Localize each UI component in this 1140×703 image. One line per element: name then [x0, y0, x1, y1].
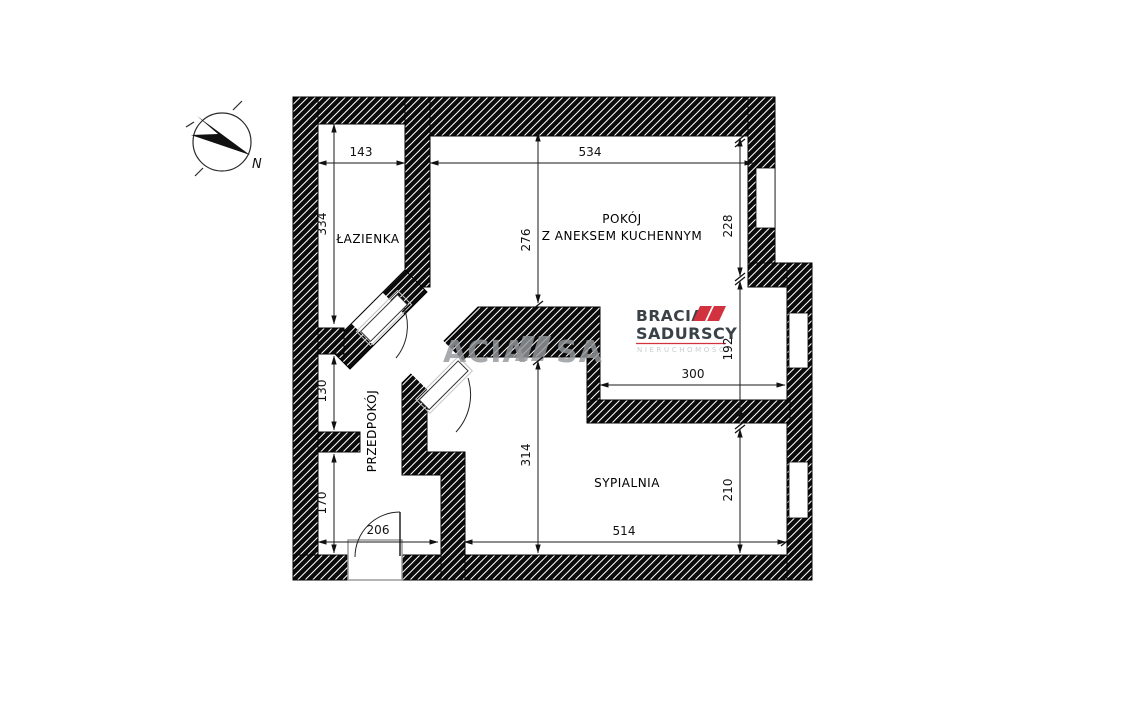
dim-kitchen-height: 192	[721, 338, 735, 361]
room-label-bedroom: SYPIALNIA	[594, 476, 660, 490]
dim-kitchen-width: 300	[682, 367, 705, 381]
north-compass: N	[186, 101, 262, 176]
north-arrow-icon	[191, 116, 250, 155]
window-kitchen-right	[789, 313, 808, 368]
dim-hall-lower: 170	[315, 492, 329, 515]
wall-pier-b	[318, 432, 360, 452]
room-label-hall: PRZEDPOKÓJ	[364, 390, 379, 473]
room-label-living-line2: Z ANEKSEM KUCHENNYM	[542, 229, 703, 243]
floor-plan-svg: ACIA SA BRACIA SADURSCY NIERUCHOMOŚCI	[0, 0, 1140, 703]
dim-entry-width: 206	[367, 523, 390, 537]
dim-hall-upper: 130	[315, 380, 329, 403]
room-label-bathroom: ŁAZIENKA	[335, 232, 399, 246]
dim-bath-height: 334	[315, 213, 329, 236]
wall-pier-a	[318, 328, 344, 354]
watermark: ACIA SA	[443, 335, 603, 370]
compass-tick	[233, 101, 242, 110]
dim-bed-height-right: 210	[721, 479, 735, 502]
window-top-right	[756, 168, 775, 228]
dim-bath-width: 143	[350, 145, 373, 159]
compass-north-label: N	[252, 157, 262, 172]
logo-tagline: NIERUCHOMOŚCI	[637, 345, 731, 354]
compass-tick	[186, 122, 194, 127]
room-label-living-line1: POKÓJ	[602, 211, 641, 226]
wall-bathroom-right	[405, 97, 430, 287]
window-bedroom-right	[789, 462, 808, 518]
logo-brand-line1: BRACIA	[636, 307, 704, 325]
watermark-text-right: SA	[556, 335, 603, 370]
dim-bed-width: 514	[613, 524, 636, 538]
wall-bedroom-top	[587, 400, 790, 423]
hall-door-swing	[456, 378, 471, 432]
floor-plan: ACIA SA BRACIA SADURSCY NIERUCHOMOŚCI	[0, 0, 1140, 703]
dim-living-height-left: 276	[519, 229, 533, 252]
compass-tick	[195, 168, 203, 176]
dim-living-height-right: 228	[721, 215, 735, 238]
wall-top-deep	[405, 97, 748, 136]
dim-bed-height-left: 314	[519, 444, 533, 467]
wall-right-lower	[787, 263, 812, 580]
compass-center-dot	[220, 140, 224, 144]
dim-living-width: 534	[579, 145, 602, 159]
watermark-text-left: ACIA	[443, 335, 527, 370]
